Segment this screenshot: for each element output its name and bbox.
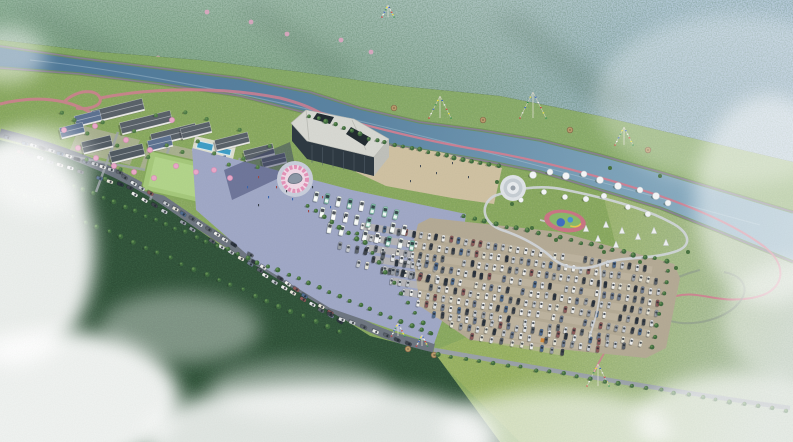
render-grain-overlay: [0, 0, 793, 442]
rendering-canvas: [0, 0, 793, 442]
aerial-resort-rendering: [0, 0, 793, 442]
